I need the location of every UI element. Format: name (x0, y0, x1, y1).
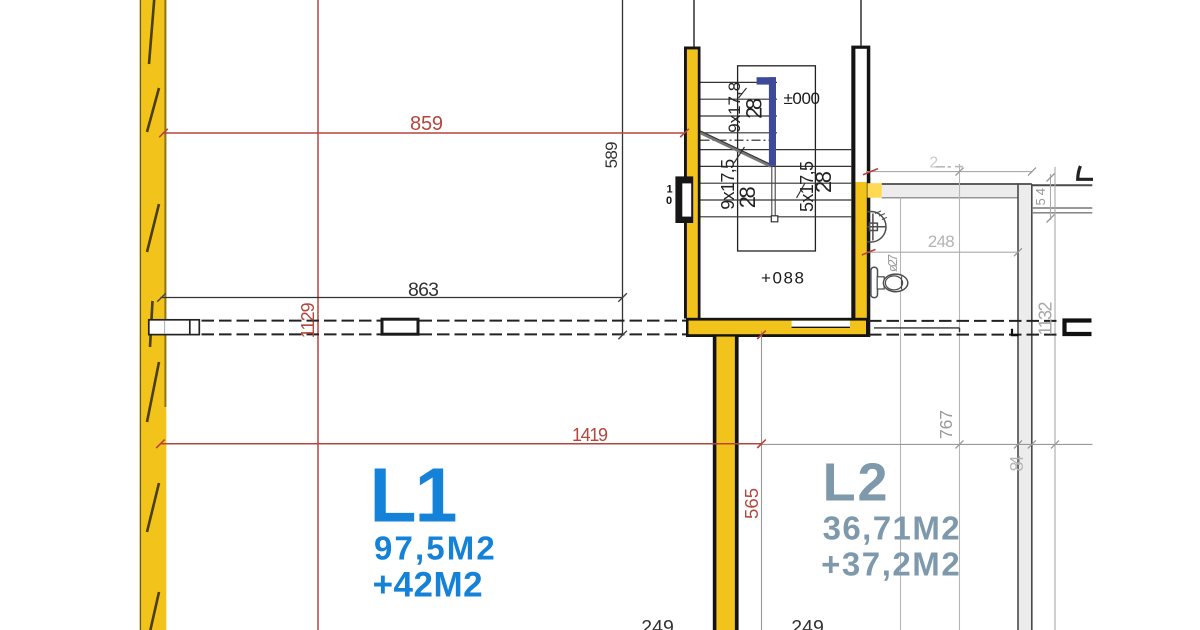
svg-text:+088: +088 (761, 269, 804, 288)
svg-text:1419: 1419 (572, 425, 608, 445)
svg-text:L1: L1 (370, 452, 458, 538)
svg-text:+37,2M2: +37,2M2 (821, 546, 960, 583)
svg-text:ø27: ø27 (885, 254, 900, 272)
svg-text:565: 565 (741, 488, 762, 519)
svg-text:249: 249 (791, 617, 824, 630)
svg-text:±000: ±000 (784, 89, 821, 108)
svg-text:249: 249 (641, 617, 674, 630)
svg-text:+42M2: +42M2 (373, 565, 483, 604)
svg-text:1129: 1129 (298, 302, 318, 338)
svg-text:589: 589 (602, 141, 621, 168)
svg-text:28: 28 (735, 186, 760, 208)
svg-text:863: 863 (408, 279, 439, 301)
svg-text:1132: 1132 (1036, 302, 1056, 336)
svg-text:248: 248 (928, 232, 955, 251)
svg-text:L2: L2 (823, 452, 888, 512)
svg-text:2: 2 (930, 154, 939, 171)
svg-text:859: 859 (410, 113, 443, 135)
svg-text:28: 28 (741, 98, 766, 119)
svg-text:28: 28 (811, 171, 836, 193)
svg-text:97,5M2: 97,5M2 (374, 530, 495, 567)
svg-text:54: 54 (1033, 188, 1048, 206)
svg-text:84: 84 (1007, 456, 1027, 472)
svg-text:767: 767 (936, 410, 956, 439)
svg-text:0: 0 (666, 195, 672, 207)
svg-text:36,71M2: 36,71M2 (823, 510, 960, 547)
svg-text:1: 1 (667, 184, 673, 196)
